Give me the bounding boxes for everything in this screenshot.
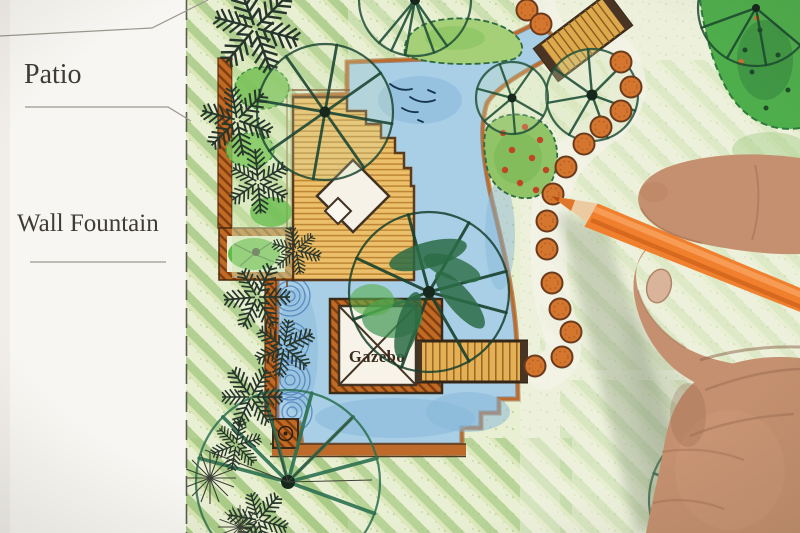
- landscape-plan-photo: Gazebo: [0, 0, 800, 533]
- photo-vignette: [0, 0, 800, 533]
- plan-drawing: Gazebo: [0, 0, 800, 533]
